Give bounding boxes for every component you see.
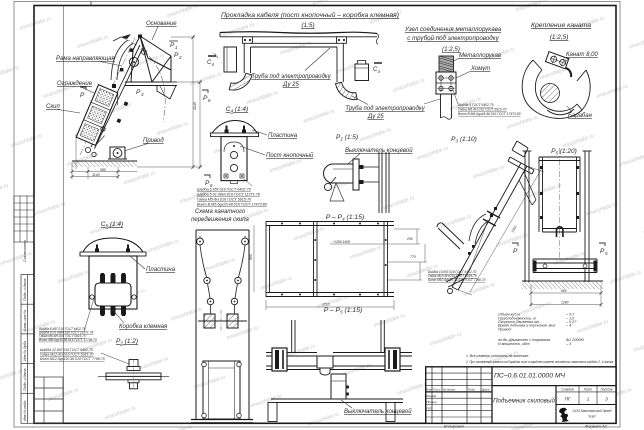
svg-text:Шайба 5.01.08кп.016 ГОСТ 11371: Шайба 5.01.08кп.016 ГОСТ 11371-78 bbox=[197, 193, 261, 197]
svg-text:250: 250 bbox=[406, 237, 413, 241]
svg-text:P5 (1:20): P5 (1:20) bbox=[551, 148, 577, 156]
svg-text:Пластина: Пластина bbox=[268, 133, 298, 139]
svg-text:Шайба 5.65Г.016 ГОСТ 6402-70: Шайба 5.65Г.016 ГОСТ 6402-70 bbox=[197, 188, 252, 192]
svg-text:770: 770 bbox=[410, 255, 416, 259]
svg-text:1140: 1140 bbox=[92, 173, 100, 177]
svg-text:Инв № подл: Инв № подл bbox=[23, 401, 27, 421]
svg-text:ПГ: ПГ bbox=[564, 397, 570, 403]
svg-text:C5 (1:4): C5 (1:4) bbox=[101, 221, 123, 229]
svg-text:Подп. и дата: Подп. и дата bbox=[23, 279, 27, 302]
svg-text:Узел соединения металлорукава: Узел соединения металлорукава bbox=[404, 26, 502, 33]
svg-text:Крепление каната: Крепление каната bbox=[531, 22, 591, 29]
svg-text:Изм: Изм bbox=[426, 388, 431, 392]
svg-text:Привод: Привод bbox=[143, 138, 164, 144]
svg-text:P: P bbox=[513, 248, 518, 255]
svg-text:(1:2,5): (1:2,5) bbox=[550, 34, 569, 41]
svg-text:Согласовано: Согласовано bbox=[23, 240, 27, 262]
svg-text:Шайба 6 ГОСТ 6402-70: Шайба 6 ГОСТ 6402-70 bbox=[458, 103, 494, 107]
svg-text:Металлорукав: Металлорукав bbox=[459, 53, 501, 59]
svg-text:– 4: – 4 bbox=[565, 324, 571, 328]
svg-text:Взам. инв №: Взам. инв № bbox=[23, 310, 27, 331]
svg-text:Копировал: Копировал bbox=[444, 424, 465, 429]
svg-text:Подп. и дата: Подп. и дата bbox=[23, 369, 27, 392]
svg-text:Прокладка кабеля (пост кнопочн: Прокладка кабеля (пост кнопочный – короб… bbox=[221, 11, 399, 19]
svg-text:1. Все размеры уточнить на мон: 1. Все размеры уточнить на монтаже. bbox=[466, 354, 529, 358]
svg-text:Хомут: Хомут bbox=[470, 66, 490, 72]
svg-text:1: 1 bbox=[587, 397, 590, 403]
svg-text:Барабан: Барабан bbox=[568, 113, 593, 119]
svg-text:Гайка М5-6Н.016 ГОСТ 5915-70: Гайка М5-6Н.016 ГОСТ 5915-70 bbox=[197, 198, 252, 202]
svg-text:Винт В.М6-6gх45.46.016 ГОСТ 17: Винт В.М6-6gх45.46.016 ГОСТ 17473-80 bbox=[458, 112, 521, 116]
svg-text:~1255-1600: ~1255-1600 bbox=[332, 240, 350, 244]
svg-text:Винт В.М5-6gх20.48.016 ГОСТ 17: Винт В.М5-6gх20.48.016 ГОСТ 17473-80 bbox=[197, 203, 268, 207]
svg-text:2: 2 bbox=[178, 55, 182, 60]
svg-text:ООО Капитальный Завод: ООО Капитальный Завод bbox=[573, 409, 612, 413]
svg-text:Болт М10-6gх35.46.016 ГОСТ 779: Болт М10-6gх35.46.016 ГОСТ 7798-70 bbox=[428, 278, 486, 282]
svg-text:Шайба 12.65Г.016 ГОСТ 6402-70: Шайба 12.65Г.016 ГОСТ 6402-70 bbox=[40, 348, 93, 352]
svg-text:передвижения скипа: передвижения скипа bbox=[191, 217, 249, 223]
svg-text:Ограждение: Ограждение bbox=[57, 81, 93, 87]
svg-text:Пост кнопочный: Пост кнопочный bbox=[266, 152, 314, 159]
svg-text:ПС–0.6.01.01.0000 МЧ: ПС–0.6.01.01.0000 МЧ bbox=[494, 373, 565, 380]
svg-text:Основание: Основание bbox=[146, 21, 177, 27]
svg-text:P3 (1:10): P3 (1:10) bbox=[451, 136, 477, 144]
svg-text:Подп.: Подп. bbox=[468, 388, 476, 392]
svg-text:N мощность, кВт: N мощность, кВт bbox=[498, 342, 530, 346]
svg-text:Лист: Лист bbox=[583, 388, 593, 392]
svg-text:Труба под электропроводку: Труба под электропроводку bbox=[251, 74, 331, 80]
svg-text:P – P5 (1:15): P – P5 (1:15) bbox=[324, 307, 363, 315]
svg-text:Ду 25: Ду 25 bbox=[282, 82, 299, 88]
svg-text:Лист: Лист bbox=[432, 388, 441, 392]
svg-text:Дата: Дата bbox=[481, 388, 490, 392]
svg-text:P – P4 (1:15): P – P4 (1:15) bbox=[326, 214, 365, 222]
svg-text:ГКП: ГКП bbox=[427, 406, 433, 410]
svg-text:3: 3 bbox=[605, 397, 608, 403]
svg-text:P2 (1:2): P2 (1:2) bbox=[116, 338, 138, 346]
svg-text:(1:5): (1:5) bbox=[301, 22, 314, 29]
svg-text:(1:2,5): (1:2,5) bbox=[442, 46, 460, 53]
svg-text:1280: 1280 bbox=[561, 301, 569, 305]
svg-text:"РЗР": "РЗР" bbox=[588, 415, 597, 419]
svg-text:Формат А2: Формат А2 bbox=[585, 424, 608, 429]
svg-text:900: 900 bbox=[249, 254, 253, 260]
svg-text:Гайка М12-6Н.016 ГОСТ 5915-70: Гайка М12-6Н.016 ГОСТ 5915-70 bbox=[40, 353, 93, 357]
svg-text:Провер.: Провер. bbox=[427, 400, 438, 404]
svg-text:Винт МВ-6gх30.58.016 ГОСТ 1779: Винт МВ-6gх30.58.016 ГОСТ 17798-70 bbox=[39, 338, 97, 342]
svg-text:Скип: Скип bbox=[46, 104, 61, 110]
svg-text:Подъемник скиповый: Подъемник скиповый bbox=[493, 398, 555, 405]
svg-text:Листов: Листов bbox=[599, 388, 612, 392]
svg-text:Стадия: Стадия bbox=[561, 388, 574, 392]
svg-text:Гайка М6-6Н.016 ГОСТ 5915-70: Гайка М6-6Н.016 ГОСТ 5915-70 bbox=[458, 108, 507, 112]
svg-text:Привод:: Привод: bbox=[498, 327, 512, 331]
svg-text:3245: 3245 bbox=[193, 102, 197, 110]
svg-text:Ду 25: Ду 25 bbox=[367, 114, 384, 120]
svg-text:580: 580 bbox=[100, 168, 106, 172]
svg-text:№ докум.: № докум. bbox=[443, 388, 456, 392]
svg-text:Разраб.: Разраб. bbox=[427, 394, 438, 398]
svg-text:Схема канатного: Схема канатного bbox=[195, 209, 246, 215]
svg-text:1710: 1710 bbox=[322, 303, 330, 307]
svg-text:C4 (1:4): C4 (1:4) bbox=[226, 106, 248, 114]
svg-text:960: 960 bbox=[561, 289, 567, 293]
svg-text:Коробка клемная: Коробка клемная bbox=[119, 324, 168, 330]
svg-text:Рама направляющая: Рама направляющая bbox=[56, 56, 116, 62]
svg-text:2. При натяжении каната на бар: 2. При натяжении каната на барабан скип … bbox=[465, 360, 614, 364]
svg-text:Пластина: Пластина bbox=[146, 267, 176, 273]
svg-text:Инв № дубл: Инв № дубл bbox=[23, 341, 27, 361]
svg-text:– 3: – 3 bbox=[565, 342, 572, 346]
svg-text:Канат 8,00: Канат 8,00 bbox=[566, 52, 599, 58]
svg-text:Труба под электропроводку: Труба под электропроводку bbox=[345, 106, 425, 112]
svg-text:Выключатель концевой: Выключатель концевой bbox=[344, 408, 412, 415]
svg-text:Болт М12-6gх110.46.016 ГОСТ 77: Болт М12-6gх110.46.016 ГОСТ 7798-70 bbox=[40, 357, 105, 361]
svg-text:с трубой под электропроводку: с трубой под электропроводку bbox=[407, 35, 499, 42]
svg-text:P: P bbox=[80, 92, 85, 99]
svg-text:P2 (1:5): P2 (1:5) bbox=[336, 134, 358, 142]
